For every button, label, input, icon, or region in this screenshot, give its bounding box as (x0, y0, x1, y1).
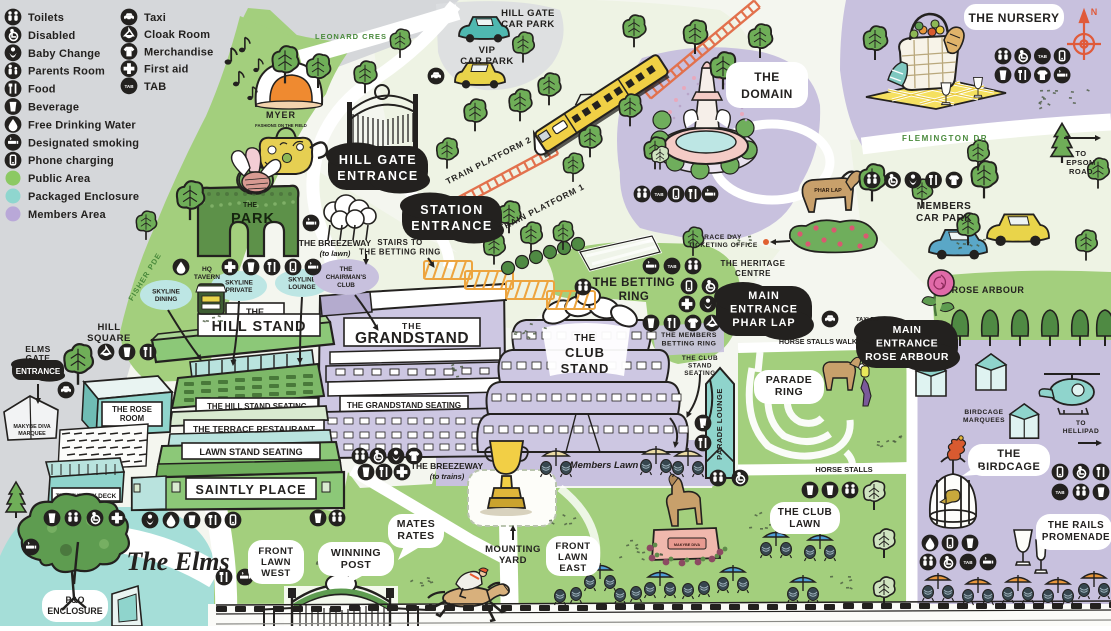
svg-text:Free Drinking Water: Free Drinking Water (28, 119, 136, 131)
svg-text:CHAIRMAN'S: CHAIRMAN'S (326, 274, 367, 281)
svg-text:CLUB: CLUB (337, 282, 355, 289)
svg-text:Merchandise: Merchandise (144, 46, 213, 58)
svg-text:ENTRANCE: ENTRANCE (730, 304, 798, 316)
svg-text:HELLIPAD: HELLIPAD (1063, 428, 1099, 435)
svg-text:LAWN: LAWN (558, 552, 588, 563)
svg-text:Members Area: Members Area (28, 209, 106, 221)
svg-text:Baby Change: Baby Change (28, 48, 101, 60)
svg-text:MARQUEES: MARQUEES (963, 417, 1005, 424)
svg-text:THE: THE (997, 448, 1021, 460)
svg-text:SKYLINE: SKYLINE (288, 277, 316, 284)
svg-text:Members Lawn: Members Lawn (570, 460, 639, 471)
svg-text:TAVERN: TAVERN (194, 274, 220, 281)
svg-text:PARADE: PARADE (766, 374, 813, 386)
svg-text:THE BETTING RING: THE BETTING RING (359, 248, 441, 257)
svg-text:THE MEMBERS: THE MEMBERS (661, 332, 717, 339)
svg-text:BIRDCAGE: BIRDCAGE (978, 461, 1041, 473)
svg-text:MAIN: MAIN (893, 324, 922, 336)
svg-text:MARQUEE: MARQUEE (18, 431, 46, 437)
svg-text:THE RAILS: THE RAILS (1048, 520, 1104, 531)
svg-text:THE NURSERY: THE NURSERY (968, 11, 1059, 25)
svg-text:STAND: STAND (561, 361, 610, 376)
svg-text:EPSOM: EPSOM (1066, 158, 1096, 167)
svg-text:Disabled: Disabled (28, 30, 75, 42)
svg-text:TO: TO (1075, 149, 1086, 158)
svg-text:SAINTLY PLACE: SAINTLY PLACE (196, 483, 307, 497)
svg-text:THE: THE (340, 266, 354, 273)
svg-text:TAB: TAB (144, 81, 166, 93)
svg-text:SEATING: SEATING (684, 370, 715, 377)
svg-text:LEONARD CRES: LEONARD CRES (315, 32, 387, 41)
svg-text:MYER: MYER (266, 110, 296, 120)
svg-text:PHAR LAP: PHAR LAP (814, 188, 842, 194)
svg-text:TAXI RD: TAXI RD (856, 317, 879, 323)
svg-text:THE: THE (574, 333, 596, 344)
svg-text:ENTRANCE: ENTRANCE (411, 219, 492, 233)
svg-text:THE CLUB: THE CLUB (682, 355, 718, 362)
svg-text:Phone charging: Phone charging (28, 155, 114, 167)
svg-text:GATE: GATE (26, 353, 51, 363)
svg-text:MOUNTING: MOUNTING (485, 544, 541, 555)
svg-text:Packaged Enclosure: Packaged Enclosure (28, 191, 139, 203)
svg-text:SKYLINE: SKYLINE (152, 289, 180, 296)
svg-text:DINING: DINING (155, 296, 177, 303)
svg-text:RING: RING (775, 386, 803, 398)
svg-text:Parents Room: Parents Room (28, 66, 105, 78)
svg-text:Public Area: Public Area (28, 173, 91, 185)
svg-text:LOUNGE: LOUNGE (288, 284, 316, 291)
svg-text:MAKYBE DIVA: MAKYBE DIVA (13, 424, 50, 430)
svg-text:MATES: MATES (397, 518, 435, 530)
svg-text:SKYLINE: SKYLINE (225, 280, 253, 287)
svg-text:CAR PARK: CAR PARK (460, 56, 513, 67)
svg-text:Taxi: Taxi (144, 12, 166, 24)
svg-text:CAR PARK: CAR PARK (916, 213, 972, 224)
svg-text:ROAD: ROAD (1069, 167, 1093, 176)
svg-text:STAND: STAND (688, 363, 712, 370)
svg-text:The Elms: The Elms (126, 547, 229, 576)
svg-text:LAWN STAND SEATING: LAWN STAND SEATING (199, 447, 302, 457)
svg-text:STATION: STATION (420, 203, 484, 217)
svg-text:First aid: First aid (144, 64, 189, 76)
svg-text:THE BREEZEWAY: THE BREEZEWAY (299, 238, 372, 248)
svg-text:MAKYBE DIVA: MAKYBE DIVA (674, 543, 701, 547)
svg-text:CENTRE: CENTRE (735, 269, 771, 278)
svg-text:Beverage: Beverage (28, 102, 79, 114)
svg-text:HILL GATE: HILL GATE (339, 153, 417, 167)
svg-text:Cloak Room: Cloak Room (144, 29, 210, 41)
svg-text:RATES: RATES (397, 530, 434, 542)
svg-text:HORSE STALLS WALK: HORSE STALLS WALK (779, 337, 858, 346)
svg-text:ROSE ARBOUR: ROSE ARBOUR (952, 285, 1025, 295)
svg-text:FLEMINGTON DR: FLEMINGTON DR (902, 134, 988, 143)
svg-text:Designated smoking: Designated smoking (28, 137, 139, 149)
svg-text:PARADE LOUNGE: PARADE LOUNGE (715, 388, 724, 460)
svg-text:ROOM: ROOM (120, 414, 144, 423)
svg-text:HILL GATE: HILL GATE (501, 8, 555, 19)
svg-text:MAIN: MAIN (748, 290, 780, 302)
svg-text:POST: POST (341, 559, 372, 571)
svg-text:BETTING RING: BETTING RING (662, 341, 717, 348)
svg-text:LAWN: LAWN (789, 519, 820, 530)
svg-text:LAWN: LAWN (261, 557, 291, 568)
svg-text:THE: THE (754, 70, 780, 84)
svg-text:TICKETING OFFICE: TICKETING OFFICE (688, 242, 758, 249)
svg-text:HQ: HQ (202, 266, 212, 273)
svg-text:ENCLOSURE: ENCLOSURE (47, 606, 102, 616)
svg-text:PARK: PARK (231, 211, 275, 227)
svg-text:HORSE STALLS: HORSE STALLS (815, 465, 872, 474)
svg-text:FRONT: FRONT (555, 541, 590, 552)
svg-text:YARD: YARD (499, 555, 527, 566)
svg-text:HILL: HILL (97, 322, 120, 333)
svg-text:(to lawn): (to lawn) (320, 249, 351, 258)
svg-text:RING: RING (619, 291, 650, 303)
svg-text:PHAR LAP: PHAR LAP (732, 317, 795, 329)
svg-text:DOMAIN: DOMAIN (741, 87, 793, 101)
svg-text:PROMENADE: PROMENADE (1042, 532, 1110, 543)
svg-text:STAIRS TO: STAIRS TO (377, 238, 422, 247)
svg-text:VIP: VIP (479, 45, 496, 56)
svg-text:EAST: EAST (559, 563, 586, 574)
svg-text:PRIVATE: PRIVATE (226, 287, 253, 294)
svg-text:TO: TO (1076, 420, 1086, 427)
svg-text:THE CLUB: THE CLUB (778, 507, 833, 518)
svg-text:ENTRANCE: ENTRANCE (876, 338, 938, 350)
svg-text:ENTRANCE: ENTRANCE (16, 367, 61, 376)
svg-text:CLUB: CLUB (565, 345, 605, 360)
svg-text:GRANDSTAND: GRANDSTAND (355, 330, 469, 347)
svg-text:ENTRANCE: ENTRANCE (337, 169, 418, 183)
svg-text:Food: Food (28, 84, 56, 96)
svg-text:SQUARE: SQUARE (87, 333, 131, 344)
svg-text:FRONT: FRONT (258, 546, 293, 557)
svg-text:WEST: WEST (261, 568, 290, 579)
svg-text:CAR PARK: CAR PARK (501, 19, 554, 30)
svg-text:FASHIONS ON THE FIELD: FASHIONS ON THE FIELD (255, 123, 307, 128)
svg-text:THE HERITAGE: THE HERITAGE (721, 259, 786, 268)
svg-text:THE: THE (243, 202, 257, 209)
svg-text:BIRDCAGE: BIRDCAGE (964, 409, 1003, 416)
svg-text:THE BREEZEWAY: THE BREEZEWAY (411, 461, 484, 471)
svg-text:(to trains): (to trains) (430, 472, 465, 481)
svg-text:ROSE ARBOUR: ROSE ARBOUR (865, 351, 949, 363)
svg-text:RACE DAY: RACE DAY (704, 234, 742, 241)
svg-text:THE BETTING: THE BETTING (593, 277, 675, 289)
svg-text:THE ROSE: THE ROSE (112, 405, 152, 414)
svg-text:N: N (1091, 7, 1098, 17)
svg-text:WINNING: WINNING (331, 547, 381, 559)
svg-text:HILL STAND: HILL STAND (212, 319, 307, 335)
svg-text:MEMBERS: MEMBERS (917, 201, 972, 212)
svg-text:Toilets: Toilets (28, 12, 64, 24)
